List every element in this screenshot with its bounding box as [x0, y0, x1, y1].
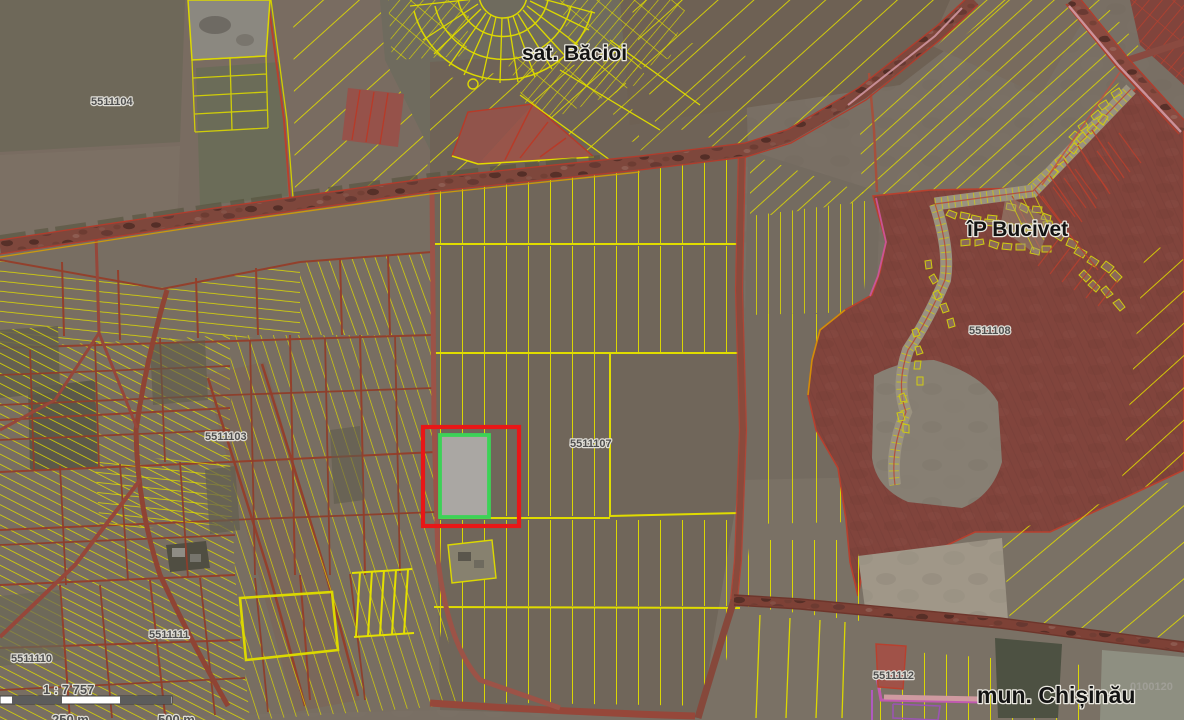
svg-text:mun. Chișinău: mun. Chișinău	[977, 682, 1135, 709]
svg-text:1 : 7 757: 1 : 7 757	[43, 682, 94, 697]
svg-text:500 m: 500 m	[158, 712, 195, 720]
svg-text:5511107: 5511107	[570, 438, 612, 450]
svg-text:0100120: 0100120	[1130, 681, 1173, 693]
svg-text:250 m: 250 m	[52, 712, 89, 720]
svg-text:sat. Băcioi: sat. Băcioi	[522, 42, 627, 65]
svg-text:îP Bucivet: îP Bucivet	[966, 218, 1068, 241]
svg-text:5511104: 5511104	[91, 96, 133, 108]
svg-text:5511111: 5511111	[149, 629, 189, 641]
svg-text:5511112: 5511112	[873, 670, 914, 682]
svg-text:5511108: 5511108	[969, 325, 1011, 337]
svg-text:5511103: 5511103	[205, 431, 247, 443]
svg-text:5511110: 5511110	[11, 653, 52, 665]
